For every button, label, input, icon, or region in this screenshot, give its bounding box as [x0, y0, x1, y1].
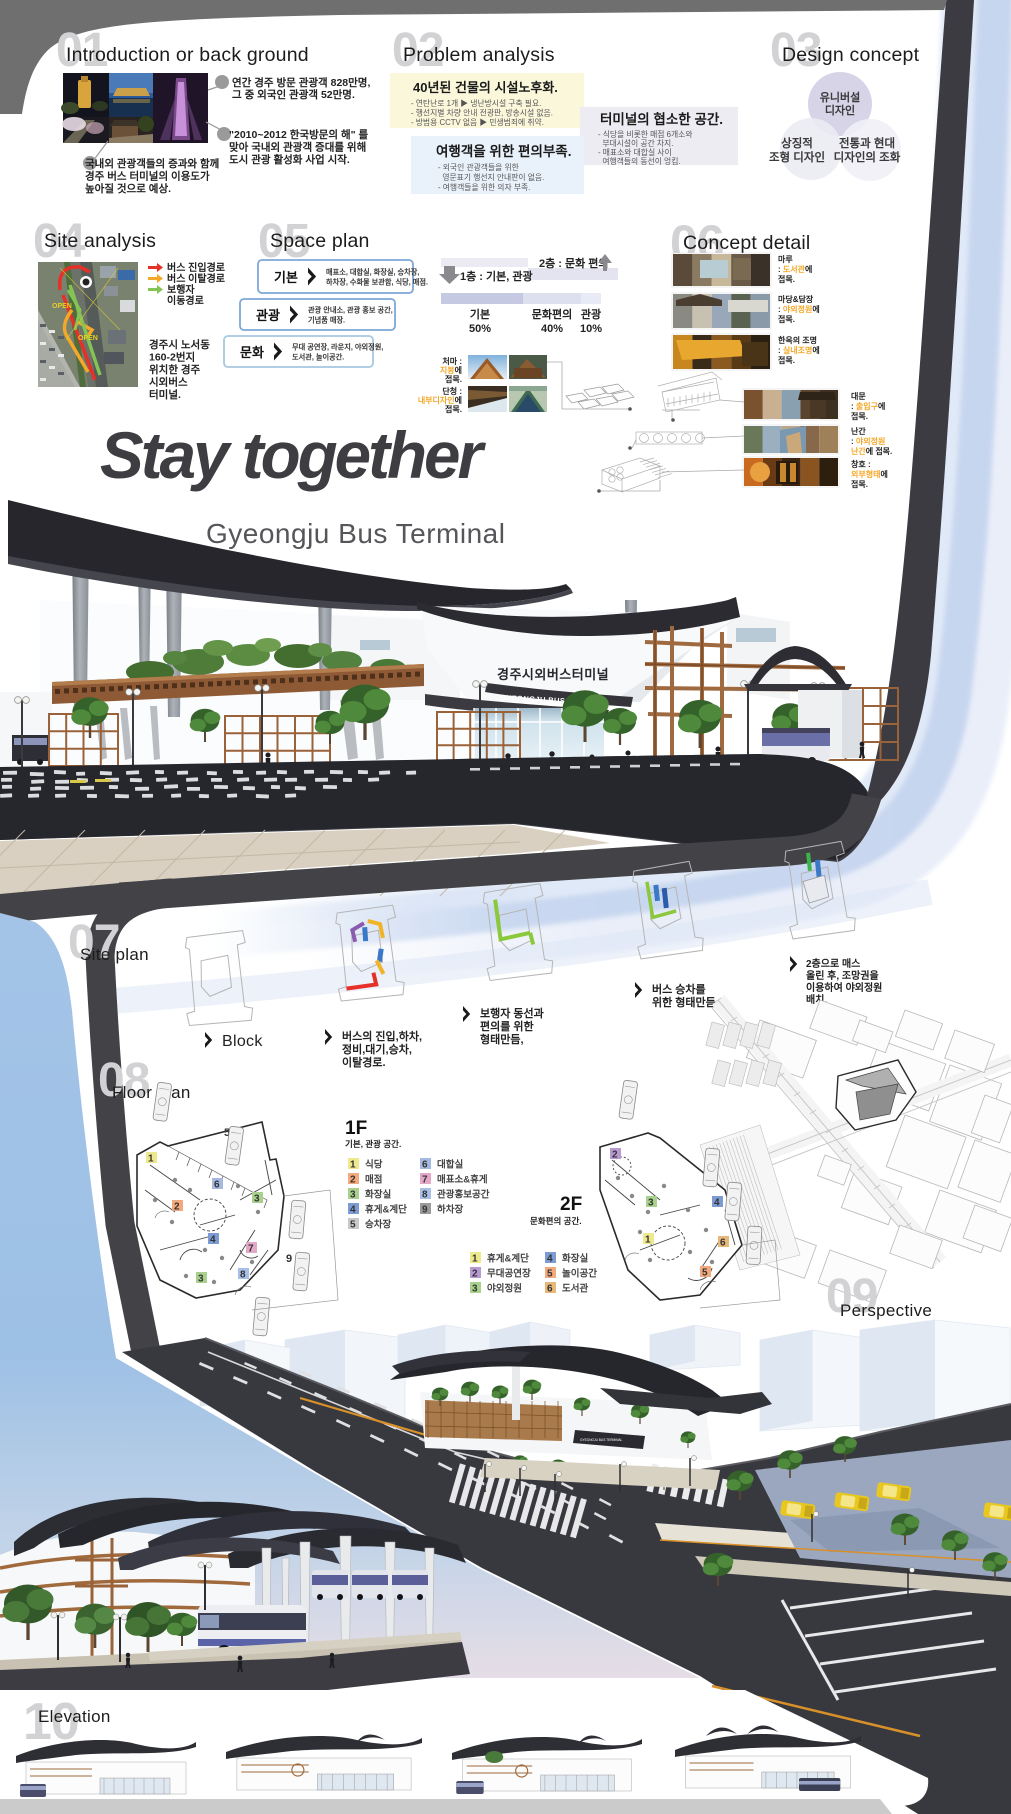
- svg-text:Space plan: Space plan: [270, 230, 370, 252]
- svg-text:3: 3: [254, 1194, 260, 1205]
- svg-text:터미널.: 터미널.: [149, 388, 181, 401]
- svg-text:정비,대기,승차,: 정비,대기,승차,: [342, 1042, 412, 1056]
- svg-text:40%: 40%: [541, 323, 563, 335]
- svg-text:기념품 매장.: 기념품 매장.: [308, 316, 345, 325]
- svg-text:관광 안내소, 관광 홍보 공간,: 관광 안내소, 관광 홍보 공간,: [308, 306, 393, 315]
- svg-text:창호 :: 창호 :: [851, 459, 871, 469]
- svg-text:4: 4: [547, 1254, 553, 1265]
- svg-text:: 야외정원: : 야외정원: [851, 436, 885, 446]
- svg-text:대문: 대문: [851, 391, 866, 401]
- svg-text:8: 8: [422, 1190, 428, 1201]
- svg-text:Block: Block: [222, 1033, 263, 1050]
- svg-text:한옥의 조명: 한옥의 조명: [778, 335, 817, 345]
- svg-text:Perspective: Perspective: [840, 1301, 932, 1320]
- svg-text:문화편의 공간.: 문화편의 공간.: [530, 1216, 582, 1226]
- svg-text:- 행선지별 차량 안내 전광판, 방송시설 없음.: - 행선지별 차량 안내 전광판, 방송시설 없음.: [411, 108, 553, 118]
- svg-text:3: 3: [472, 1284, 478, 1295]
- svg-text:접목.: 접목.: [778, 355, 795, 365]
- svg-text:조형 디자인: 조형 디자인: [769, 150, 825, 164]
- svg-text:화장실: 화장실: [365, 1189, 391, 1201]
- svg-text:GYEONGJU BUS TERMINAL: GYEONGJU BUS TERMINAL: [580, 1438, 622, 1442]
- svg-text:보행자: 보행자: [167, 283, 195, 296]
- svg-text:경주시외버스터미널: 경주시외버스터미널: [497, 667, 609, 682]
- svg-text:승차장: 승차장: [365, 1219, 391, 1231]
- svg-text:버스 진입경로: 버스 진입경로: [167, 261, 225, 274]
- svg-text:3: 3: [648, 1198, 654, 1209]
- svg-text:Stay together: Stay together: [100, 418, 486, 492]
- svg-text:대합실: 대합실: [437, 1159, 463, 1171]
- svg-text:OPEN: OPEN: [78, 335, 98, 342]
- svg-text:9: 9: [286, 1253, 292, 1265]
- svg-text:여행객을 위한 편의부족.: 여행객을 위한 편의부족.: [436, 143, 571, 159]
- svg-text:무대공연장: 무대공연장: [487, 1268, 531, 1280]
- svg-text:40년된 건물의 시설노후화.: 40년된 건물의 시설노후화.: [413, 80, 558, 95]
- svg-text:국내외 관광객들의 증과와 함께: 국내외 관광객들의 증과와 함께: [85, 157, 219, 170]
- svg-text:- 연탄난로 1개 ▶ 냉난방시설 구축 필요.: - 연탄난로 1개 ▶ 냉난방시설 구축 필요.: [411, 98, 541, 108]
- svg-text:6: 6: [422, 1160, 428, 1171]
- svg-text:매표소, 대합실, 화장실, 승차장,: 매표소, 대합실, 화장실, 승차장,: [326, 268, 419, 277]
- svg-text:3: 3: [350, 1190, 356, 1201]
- svg-text:: 야외정원에: : 야외정원에: [778, 304, 820, 314]
- svg-text:난간에 접목.: 난간에 접목.: [851, 446, 892, 456]
- svg-text:문화: 문화: [240, 345, 264, 360]
- svg-text:도서관: 도서관: [562, 1283, 588, 1295]
- svg-text:Site analysis: Site analysis: [44, 230, 156, 252]
- svg-text:: 도서관에: : 도서관에: [778, 264, 812, 274]
- svg-text:기본: 기본: [470, 307, 490, 321]
- svg-text:4: 4: [350, 1205, 356, 1216]
- svg-text:2: 2: [174, 1202, 180, 1213]
- svg-text:보행자 동선과: 보행자 동선과: [480, 1006, 544, 1020]
- svg-text:Site plan: Site plan: [80, 945, 149, 964]
- svg-text:2F: 2F: [560, 1194, 582, 1215]
- svg-text:- 외국인 관광객들을 위한: - 외국인 관광객들을 위한: [438, 162, 519, 172]
- svg-text:영문표기 행선지 안내판이 없음.: 영문표기 행선지 안내판이 없음.: [438, 172, 544, 182]
- svg-text:여행객들의 동선이 엉킴.: 여행객들의 동선이 엉킴.: [598, 156, 681, 166]
- svg-text:관광: 관광: [256, 308, 280, 323]
- svg-text:이탈경로.: 이탈경로.: [342, 1055, 386, 1069]
- svg-text:10%: 10%: [580, 323, 602, 335]
- svg-text:1: 1: [350, 1160, 356, 1171]
- svg-text:1F: 1F: [345, 1118, 367, 1139]
- svg-text:Introduction or back ground: Introduction or back ground: [66, 44, 309, 66]
- svg-text:5: 5: [702, 1268, 708, 1279]
- svg-text:- 여행객들을 위한 의자 부족.: - 여행객들을 위한 의자 부족.: [438, 182, 530, 192]
- svg-text:시외버스: 시외버스: [149, 376, 188, 389]
- svg-text:맞아 국내외 관광객 증대를 위해: 맞아 국내외 관광객 증대를 위해: [229, 141, 366, 154]
- svg-text:접목.: 접목.: [445, 374, 462, 384]
- svg-text:기본: 기본: [274, 270, 298, 285]
- svg-text:9: 9: [422, 1205, 428, 1216]
- svg-text:그 중 외국인 관광객 52만명.: 그 중 외국인 관광객 52만명.: [232, 88, 355, 101]
- svg-text:7: 7: [248, 1244, 254, 1255]
- svg-text:휴게&계단: 휴게&계단: [365, 1204, 407, 1216]
- svg-text:도시 관광 활성화 사업 시작.: 도시 관광 활성화 사업 시작.: [229, 153, 350, 166]
- svg-text:접목.: 접목.: [778, 314, 795, 324]
- svg-text:Design concept: Design concept: [782, 44, 920, 66]
- svg-text:접목.: 접목.: [851, 479, 868, 489]
- svg-text:Problem analysis: Problem analysis: [403, 44, 555, 66]
- svg-text:1: 1: [645, 1235, 651, 1246]
- svg-text:- 방범용 CCTV 없음 ▶ 민생범죄에 취약.: - 방범용 CCTV 없음 ▶ 민생범죄에 취약.: [411, 117, 544, 127]
- svg-text:연간 경주 방문 관광객 828만명,: 연간 경주 방문 관광객 828만명,: [232, 76, 370, 89]
- svg-text:야외정원: 야외정원: [487, 1283, 522, 1295]
- svg-text:"2010~2012 한국방문의 해" 를: "2010~2012 한국방문의 해" 를: [229, 128, 369, 141]
- svg-text:경주 버스 터미널의 이용도가: 경주 버스 터미널의 이용도가: [85, 170, 210, 183]
- svg-text:관광홍보공간: 관광홍보공간: [437, 1189, 490, 1201]
- svg-text:2: 2: [612, 1150, 618, 1161]
- svg-text:접목.: 접목.: [778, 274, 795, 284]
- svg-text:부대시설이 공간 차지.: 부대시설이 공간 차지.: [598, 138, 673, 148]
- svg-text:올린 후, 조망권을: 올린 후, 조망권을: [806, 969, 879, 982]
- svg-text:4: 4: [714, 1198, 720, 1209]
- svg-text:1: 1: [148, 1154, 154, 1165]
- svg-text:Gyeongju Bus Terminal: Gyeongju Bus Terminal: [206, 518, 505, 549]
- svg-text:내부디자인에: 내부디자인에: [418, 395, 462, 405]
- svg-text:상징적: 상징적: [781, 136, 813, 150]
- svg-text:매점: 매점: [365, 1174, 382, 1186]
- svg-text:난간: 난간: [851, 426, 866, 436]
- svg-text:디자인: 디자인: [825, 103, 855, 117]
- svg-text:마당&담장: 마당&담장: [778, 294, 814, 304]
- svg-text:6: 6: [720, 1238, 726, 1249]
- svg-text:형태만듬,: 형태만듬,: [480, 1032, 524, 1046]
- svg-text:버스의 진입,하차,: 버스의 진입,하차,: [342, 1029, 422, 1043]
- svg-text:: 실내조명에: : 실내조명에: [778, 345, 820, 355]
- svg-text:1: 1: [472, 1254, 478, 1265]
- svg-text:위치한 경주: 위치한 경주: [149, 363, 201, 376]
- svg-text:터미널의 협소한 공간.: 터미널의 협소한 공간.: [600, 111, 723, 127]
- svg-text:놀이공간: 놀이공간: [562, 1268, 597, 1280]
- svg-text:기본, 관광 공간.: 기본, 관광 공간.: [345, 1139, 401, 1149]
- svg-text:Floor plan: Floor plan: [112, 1083, 191, 1102]
- svg-text:접목.: 접목.: [851, 411, 868, 421]
- svg-text:높아질 것으로 예상.: 높아질 것으로 예상.: [85, 182, 171, 195]
- svg-text:4: 4: [210, 1235, 216, 1246]
- svg-text:OPEN: OPEN: [52, 303, 72, 310]
- svg-text:7: 7: [422, 1175, 428, 1186]
- svg-text:Elevation: Elevation: [38, 1707, 111, 1726]
- svg-text:하차장, 수화물 보관함, 식당, 매점.: 하차장, 수화물 보관함, 식당, 매점.: [326, 278, 428, 287]
- svg-text:- 매표소와 대합실 사이: - 매표소와 대합실 사이: [598, 147, 672, 157]
- svg-text:화장실: 화장실: [562, 1253, 588, 1265]
- svg-text:6: 6: [547, 1284, 553, 1295]
- svg-text:경주시 노서동: 경주시 노서동: [149, 338, 210, 351]
- svg-text:2: 2: [350, 1175, 356, 1186]
- svg-text:8: 8: [240, 1270, 246, 1281]
- svg-text:- 식당을 비롯한 매점 6개소와: - 식당을 비롯한 매점 6개소와: [598, 129, 693, 139]
- svg-text:문화편의: 문화편의: [532, 307, 572, 321]
- svg-text:단청 :: 단청 :: [442, 386, 462, 396]
- svg-text:위한 형태만듬.: 위한 형태만듬.: [652, 995, 719, 1009]
- svg-text:버스 이탈경로: 버스 이탈경로: [167, 272, 225, 285]
- svg-text:무대 공연장, 라운지, 야외정원,: 무대 공연장, 라운지, 야외정원,: [292, 343, 383, 352]
- svg-text:: 출입구에: : 출입구에: [851, 401, 885, 411]
- svg-text:외부형태에: 외부형태에: [851, 469, 888, 479]
- svg-text:전통과 현대: 전통과 현대: [839, 136, 895, 150]
- svg-text:5: 5: [350, 1220, 356, 1231]
- svg-text:이동경로: 이동경로: [167, 294, 204, 307]
- svg-text:관광: 관광: [581, 307, 601, 321]
- svg-text:5: 5: [547, 1269, 553, 1280]
- svg-text:하차장: 하차장: [437, 1204, 463, 1216]
- svg-text:도서관, 놀이공간.: 도서관, 놀이공간.: [292, 353, 344, 362]
- svg-text:휴게&계단: 휴게&계단: [487, 1253, 529, 1265]
- svg-text:6: 6: [214, 1180, 220, 1191]
- svg-text:1층 : 기본, 관광: 1층 : 기본, 관광: [460, 269, 533, 283]
- svg-text:편의를 위한: 편의를 위한: [480, 1019, 534, 1033]
- svg-text:마루: 마루: [778, 254, 793, 264]
- svg-text:160-2번지: 160-2번지: [149, 351, 195, 364]
- svg-text:식당: 식당: [365, 1159, 383, 1171]
- svg-text:50%: 50%: [469, 323, 491, 335]
- svg-text:매표소&휴게: 매표소&휴게: [437, 1174, 488, 1186]
- svg-text:Concept detail: Concept detail: [683, 232, 810, 254]
- svg-text:디자인의 조화: 디자인의 조화: [834, 150, 901, 164]
- svg-text:접목.: 접목.: [445, 404, 462, 414]
- svg-text:처마 :: 처마 :: [442, 356, 462, 366]
- svg-text:3: 3: [198, 1274, 204, 1285]
- svg-text:버스 승차를: 버스 승차를: [652, 982, 706, 996]
- svg-text:이용하여 야외정원: 이용하여 야외정원: [806, 981, 882, 994]
- svg-text:지붕에: 지붕에: [440, 365, 462, 375]
- svg-text:2층으로 매스: 2층으로 매스: [806, 957, 860, 970]
- svg-text:2: 2: [472, 1269, 478, 1280]
- svg-text:유니버설: 유니버설: [820, 90, 860, 104]
